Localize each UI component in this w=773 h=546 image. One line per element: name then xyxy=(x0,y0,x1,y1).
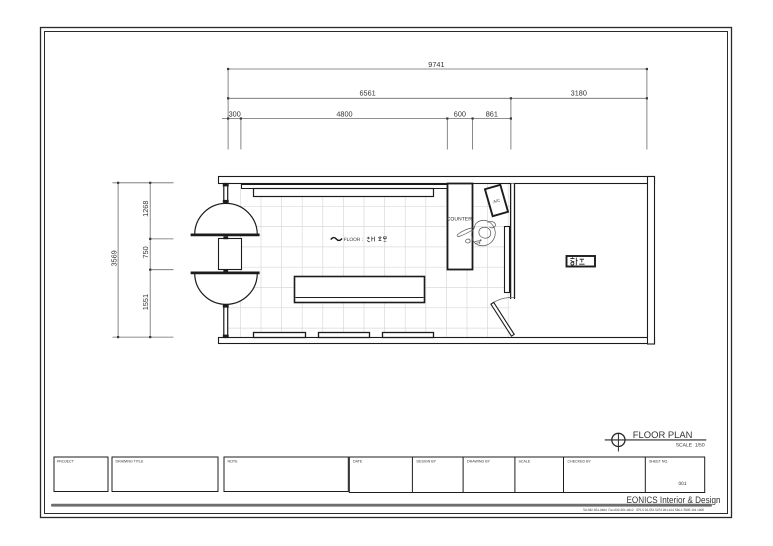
svg-text:9741: 9741 xyxy=(428,60,444,69)
svg-text:DESIGN BY: DESIGN BY xyxy=(417,460,437,464)
svg-text:SCALE 1/50: SCALE 1/50 xyxy=(676,442,705,448)
svg-text:4800: 4800 xyxy=(336,109,352,118)
svg-text:861: 861 xyxy=(486,109,498,118)
svg-text:FLOOR :: FLOOR : xyxy=(344,237,363,243)
svg-text:NOTE: NOTE xyxy=(228,460,239,464)
svg-text:DRAWING BY: DRAWING BY xyxy=(467,460,491,464)
svg-text:COUNTER: COUNTER xyxy=(447,217,473,223)
svg-text:DRAWING TITLE: DRAWING TITLE xyxy=(116,460,145,464)
svg-text:3180: 3180 xyxy=(571,89,587,98)
svg-text:600: 600 xyxy=(454,109,466,118)
svg-text:1551: 1551 xyxy=(141,294,150,310)
svg-text:SCALE: SCALE xyxy=(519,460,531,464)
svg-text:Tel:032-651-0404 Fax:032-651-: Tel:032-651-0404 Fax:032-651-0412 375-5 … xyxy=(583,508,704,512)
svg-text:FLOOR PLAN: FLOOR PLAN xyxy=(633,430,693,441)
svg-text:3569: 3569 xyxy=(109,250,118,266)
svg-text:6561: 6561 xyxy=(359,89,375,98)
svg-text:001: 001 xyxy=(678,481,686,487)
svg-text:CHECKED BY: CHECKED BY xyxy=(568,460,592,464)
svg-text:SHEET NO.: SHEET NO. xyxy=(649,460,668,464)
svg-text:300: 300 xyxy=(229,109,241,118)
svg-text:750: 750 xyxy=(141,246,150,258)
svg-text:EONICS Interior & Design: EONICS Interior & Design xyxy=(627,494,721,505)
svg-text:PROJECT: PROJECT xyxy=(57,460,75,464)
svg-text:DATE: DATE xyxy=(353,460,363,464)
svg-text:1268: 1268 xyxy=(141,201,150,217)
